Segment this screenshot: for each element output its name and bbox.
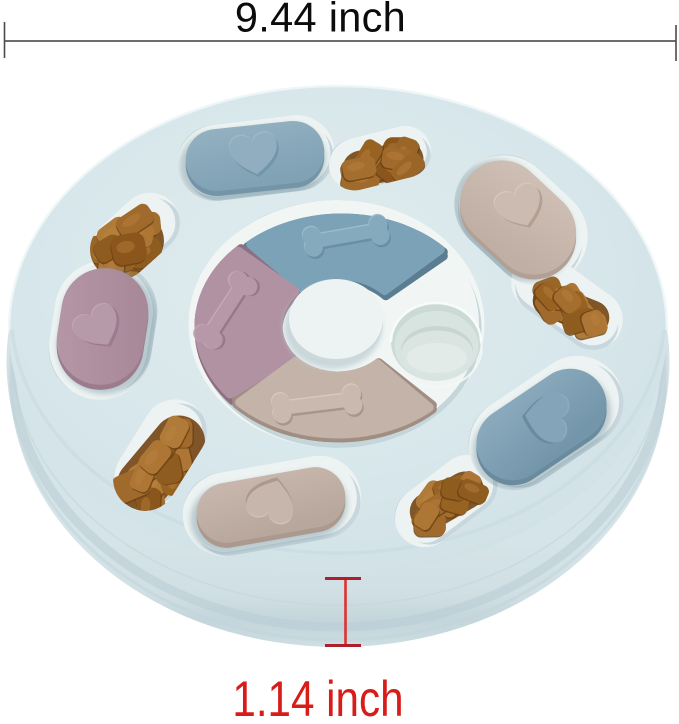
svg-text:1.14 inch: 1.14 inch (232, 670, 403, 719)
svg-text:9.44 inch: 9.44 inch (235, 0, 406, 41)
